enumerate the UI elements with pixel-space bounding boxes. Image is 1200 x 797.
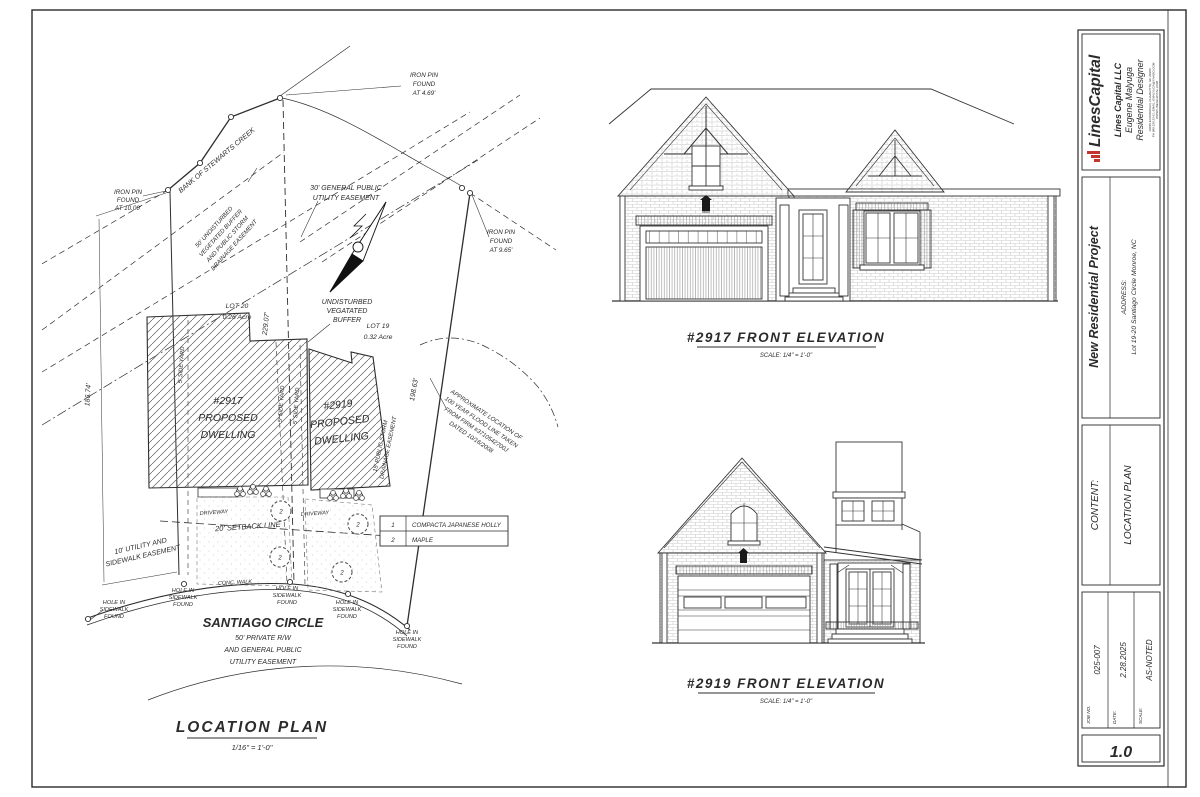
logo-bar-icon [1094,159,1100,162]
iron-pin-965-label: FOUND [490,238,513,245]
iron-pin-10-dist: AT 10.00' [114,205,142,212]
date-label: DATE: [1112,710,1117,724]
legend-row1-name: COMPACTA JAPANESE HOLLY [412,522,502,529]
company-name: Lines Capital LLC [1113,62,1123,137]
svg-text:FOUND: FOUND [337,614,357,620]
lot-20-area: 0.26 Acre [223,314,252,321]
elevation-2919-scale: SCALE: 1/4" = 1'-0" [760,699,813,705]
legend-row2-name: MAPLE [412,537,434,544]
svg-text:HOLE IN: HOLE IN [172,588,195,594]
iron-pin-10-label: FOUND [117,197,140,204]
road-sub: AND GENERAL PUBLIC [223,647,302,654]
dimension-right: 198.63' [409,377,420,401]
content-value: LOCATION PLAN [1123,465,1134,545]
svg-text:FOUND: FOUND [104,614,124,620]
scale-label: SCALE: [1138,707,1143,724]
logo-bar-icon [1087,151,1100,154]
easement-30-label: 30' GENERAL PUBLIC [310,185,383,192]
road-name: SANTIAGO CIRCLE [203,615,324,630]
dimension-middle: 229.07' [262,312,272,337]
flood-note: FROM FIRM #3710542700J [443,407,510,455]
dimension-left: 186.74' [84,383,93,407]
sheet-svg: 2 2 2 2 1 COMPACTA JAPANESE HOLLY [0,0,1200,797]
job-no-value: 025-007 [1093,645,1102,675]
iron-pin-469-label: FOUND [413,81,436,88]
svg-text:FOUND: FOUND [397,644,417,650]
iron-pin-965-dist: AT 9.65' [489,247,514,254]
designer-role: Residential Designer [1135,58,1145,140]
scale-value: AS-NOTED [1145,639,1154,682]
elevation-2917-title: #2917 FRONT ELEVATION [687,330,885,345]
svg-text:SIDEWALK: SIDEWALK [169,595,198,601]
iron-pin-469-dist: AT 4.69' [412,90,437,97]
drawing-sheet: 2 2 2 2 1 COMPACTA JAPANESE HOLLY [0,0,1200,797]
elevation-2919 [652,442,925,643]
iron-pin-469-label: IRON PIN [410,72,438,79]
lot-19-area: 0.32 Acre [364,334,393,341]
svg-text:FOUND: FOUND [173,602,193,608]
legend-row2-num: 2 [390,537,395,544]
maple-label: 2 [339,571,344,577]
lot-20-label: LOT 20 [226,303,249,310]
lot-19-label: LOT 19 [367,323,390,330]
svg-text:SIDEWALK: SIDEWALK [333,607,362,613]
contact-line: WWW.LINESCAPITAL.COM [1155,81,1159,120]
location-plan: 2 2 2 2 1 COMPACTA JAPANESE HOLLY [40,46,558,752]
address-value: Lot 19-20 Santiago Circle Monroe, NC [1131,239,1138,354]
legend-row1-num: 1 [391,522,394,529]
svg-text:HOLE IN: HOLE IN [336,600,359,606]
road-sub: UTILITY EASEMENT [230,659,297,666]
svg-text:SIDEWALK: SIDEWALK [273,593,302,599]
elevation-2917-scale: SCALE: 1/4" = 1'-0" [760,353,813,359]
elevation-2917 [609,89,1060,301]
plan-title: LOCATION PLAN [176,719,328,736]
road-sub: 50' PRIVATE R/W [235,635,292,642]
undisturbed-buffer-label: BUFFER [333,317,361,324]
dwelling-2917-label: #2917 [213,395,243,407]
logo-bar-icon [1091,155,1100,158]
svg-text:HOLE IN: HOLE IN [103,600,126,606]
logo-text: LinesCapital [1087,54,1104,147]
designer-name: Eugene Malyuga [1124,67,1134,133]
maple-label: 2 [277,556,282,562]
easement-30-label: UTILITY EASEMENT [313,195,380,202]
conc-walk-label: CONC. WALK [218,579,253,587]
dwelling-2917-stoop [198,488,238,497]
dwelling-2917-label: PROPOSED [198,412,258,424]
svg-text:HOLE IN: HOLE IN [396,630,419,636]
content-label: CONTENT: [1090,480,1101,531]
iron-pin-965-label: IRON PIN [487,229,515,236]
plan-title-scale: 1/16" = 1'-0" [232,743,273,752]
dwelling-2917-label: DWELLING [201,429,256,441]
job-no-label: JOB NO. [1086,706,1091,725]
svg-text:FOUND: FOUND [277,600,297,606]
svg-text:SIDEWALK: SIDEWALK [100,607,129,613]
maple-label: 2 [355,523,360,529]
project-title: New Residential Project [1087,225,1101,368]
sheet-number: 1.0 [1110,744,1132,761]
elevation-2919-title: #2919 FRONT ELEVATION [687,676,885,691]
date-value: 2.28.2025 [1119,642,1128,679]
maple-label: 2 [278,510,283,516]
company-logo: LinesCapital [1087,54,1104,162]
plant-legend: 1 COMPACTA JAPANESE HOLLY 2 MAPLE [380,516,508,546]
svg-text:SIDEWALK: SIDEWALK [393,637,422,643]
undisturbed-buffer-label: VEGATATED [327,308,368,315]
svg-text:HOLE IN: HOLE IN [276,586,299,592]
undisturbed-buffer-label: UNDISTURBED [322,299,373,306]
iron-pin-10-label: IRON PIN [114,189,142,196]
north-arrow-icon [330,202,386,292]
title-block: LinesCapital Lines Capital LLC Eugene Ma… [1078,30,1164,766]
address-label: ADDRESS: [1121,280,1128,316]
